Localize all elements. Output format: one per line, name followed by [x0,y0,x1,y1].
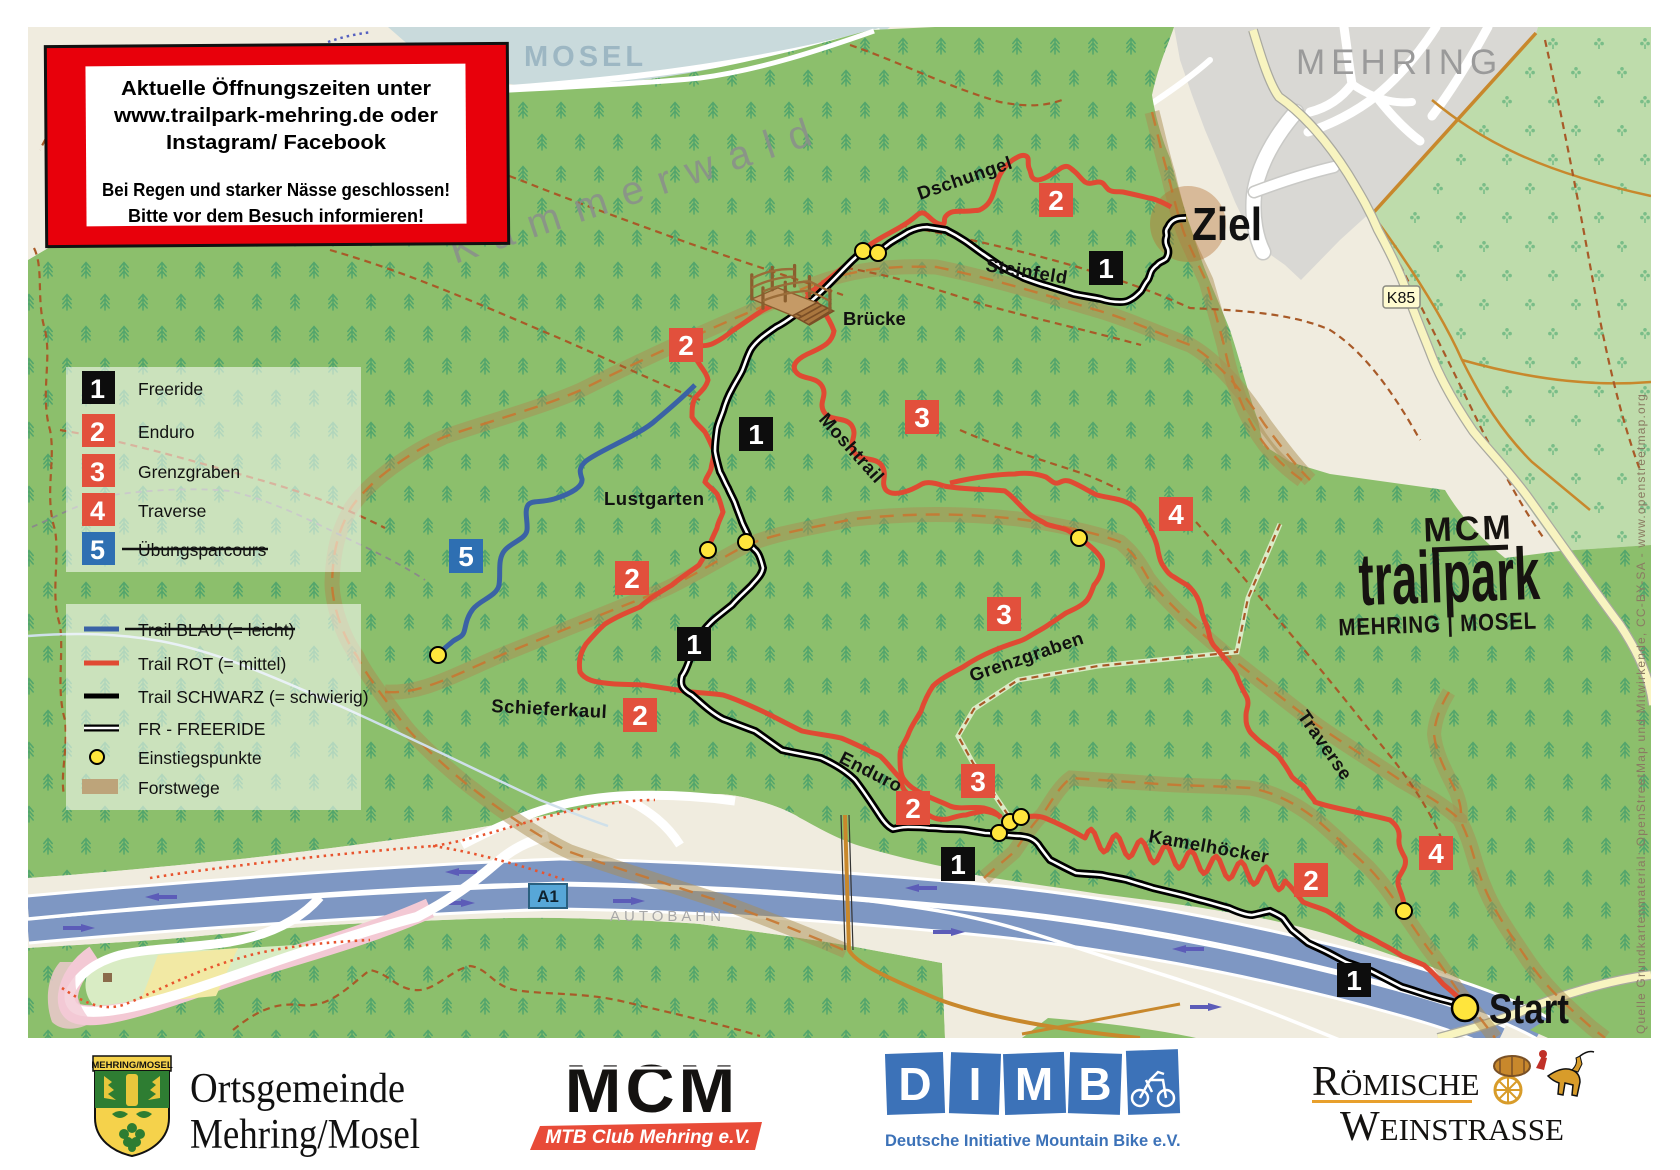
svg-text:2: 2 [1303,865,1319,896]
svg-text:Ziel: Ziel [1192,198,1262,250]
svg-text:Grenzgraben: Grenzgraben [138,462,240,482]
svg-text:Aktuelle Öffnungszeiten unter: Aktuelle Öffnungszeiten unter [121,77,431,100]
svg-text:Einstiegspunkte: Einstiegspunkte [138,748,262,768]
svg-text:3: 3 [914,402,930,433]
svg-text:5: 5 [458,541,474,572]
svg-text:MOSEL: MOSEL [524,41,647,73]
svg-text:Deutsche Initiative Mountain B: Deutsche Initiative Mountain Bike e.V. [885,1132,1181,1150]
svg-text:Start: Start [1489,985,1569,1032]
svg-text:MEHRING: MEHRING [1296,43,1503,82]
svg-text:3: 3 [996,599,1012,630]
svg-text:Freeride: Freeride [138,379,203,399]
svg-text:Mehring/Mosel: Mehring/Mosel [190,1112,420,1158]
svg-text:Bei Regen und starker Nässe ge: Bei Regen und starker Nässe geschlossen! [102,179,450,200]
svg-text:Lustgarten: Lustgarten [604,488,705,509]
svg-text:2: 2 [1048,185,1064,216]
svg-text:A1: A1 [537,887,559,906]
svg-text:Instagram/ Facebook: Instagram/ Facebook [166,131,387,154]
svg-text:2: 2 [90,417,105,447]
svg-text:3: 3 [970,766,986,797]
svg-text:MEHRING/MOSEL: MEHRING/MOSEL [91,1060,172,1071]
svg-text:www.trailpark-mehring.de oder: www.trailpark-mehring.de oder [113,104,438,127]
svg-text:1: 1 [90,374,105,404]
svg-text:Trail ROT (= mittel): Trail ROT (= mittel) [138,654,286,674]
svg-text:1: 1 [686,629,702,660]
svg-text:2: 2 [632,700,648,731]
svg-text:K85: K85 [1387,290,1416,307]
svg-text:Bitte vor dem Besuch informier: Bitte vor dem Besuch informieren! [128,205,424,226]
svg-text:MCM: MCM [565,1051,739,1127]
svg-text:Enduro: Enduro [138,422,194,442]
svg-text:1: 1 [1098,253,1114,284]
svg-text:Trail SCHWARZ (= schwierig): Trail SCHWARZ (= schwierig) [138,687,369,707]
svg-text:Brücke: Brücke [843,308,906,329]
svg-text:I: I [969,1058,982,1110]
svg-text:1: 1 [950,849,966,880]
svg-text:Ortsgemeinde: Ortsgemeinde [190,1066,405,1112]
svg-text:Forstwege: Forstwege [138,778,220,798]
svg-text:4: 4 [1428,838,1444,869]
svg-text:3: 3 [90,457,105,487]
svg-text:1: 1 [748,419,764,450]
svg-text:2: 2 [678,330,694,361]
svg-text:AUTOBAHN: AUTOBAHN [610,908,725,925]
svg-text:5: 5 [90,535,105,565]
svg-text:D: D [898,1058,931,1110]
svg-text:MTB Club Mehring e.V.: MTB Club Mehring e.V. [545,1127,750,1148]
svg-text:1: 1 [1346,965,1362,996]
svg-text:2: 2 [624,563,640,594]
svg-text:4: 4 [90,496,105,526]
svg-text:FR - FREERIDE: FR - FREERIDE [138,719,265,739]
svg-text:M: M [1015,1058,1053,1110]
svg-text:Traverse: Traverse [138,501,206,521]
svg-text:4: 4 [1168,499,1184,530]
svg-text:2: 2 [905,793,921,824]
svg-text:B: B [1078,1058,1111,1110]
svg-text:Quelle Grundkartenmaterial: Op: Quelle Grundkartenmaterial: OpenStreetMa… [1634,393,1648,1034]
